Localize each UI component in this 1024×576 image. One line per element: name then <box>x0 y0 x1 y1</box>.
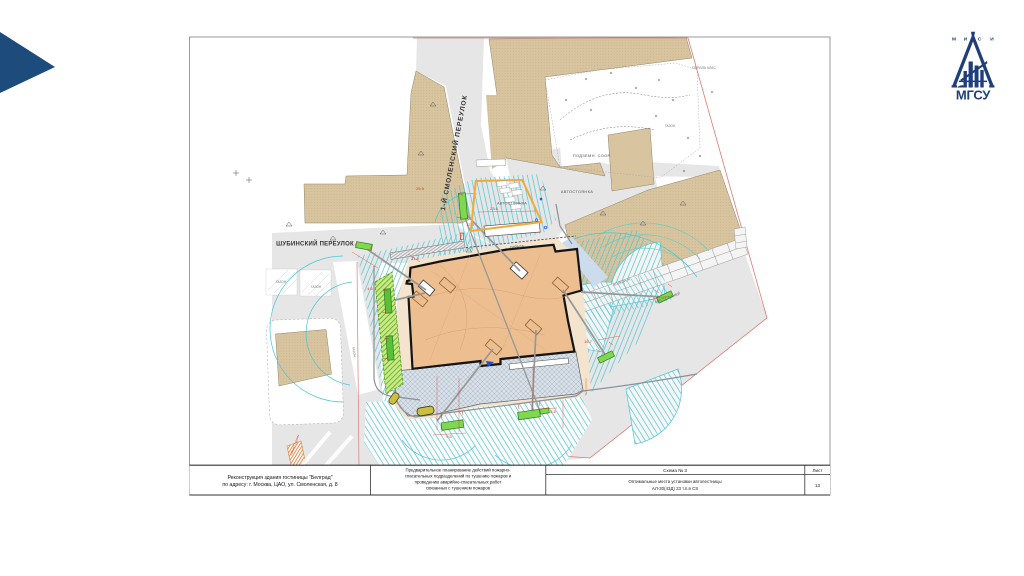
svg-text:АЛ-30(43Д) 23 т.п.в CS: АЛ-30(43Д) 23 т.п.в CS <box>652 486 698 491</box>
svg-text:ШУБИНСКИЙ ПЕРЕУЛОК: ШУБИНСКИЙ ПЕРЕУЛОК <box>276 240 354 248</box>
svg-text:АВТОСТОЯНКА: АВТОСТОЯНКА <box>497 202 527 206</box>
svg-text:ПЕРИЛА КЛАС: ПЕРИЛА КЛАС <box>692 66 716 70</box>
svg-text:И: И <box>964 37 968 43</box>
svg-text:АВТОСТОЯНКА: АВТОСТОЯНКА <box>561 189 593 194</box>
svg-text:23.6: 23.6 <box>490 206 499 211</box>
svg-text:И: И <box>990 37 994 43</box>
svg-text:ГАЗОН: ГАЗОН <box>276 280 287 284</box>
svg-text:М: М <box>952 37 956 43</box>
svg-text:связанных с тушением пожаров: связанных с тушением пожаров <box>426 486 491 491</box>
svg-text:9.5: 9.5 <box>446 434 452 439</box>
svg-text:ГАЗОН: ГАЗОН <box>311 285 322 289</box>
svg-text:Предварительное планирование д: Предварительное планирование действий по… <box>406 468 511 473</box>
svg-text:С: С <box>978 37 982 43</box>
svg-text:по адресу: г. Москва, ЦАО, ул.: по адресу: г. Москва, ЦАО, ул. Смоленска… <box>222 482 337 488</box>
svg-text:4.5: 4.5 <box>367 286 373 291</box>
svg-text:ГАЗОН: ГАЗОН <box>665 124 676 128</box>
svg-text:16.7: 16.7 <box>584 339 593 344</box>
svg-text:Схема № 3: Схема № 3 <box>663 468 687 473</box>
svg-text:13: 13 <box>815 483 821 488</box>
svg-text:17.5: 17.5 <box>466 222 475 227</box>
svg-text:спасательных подразделений по: спасательных подразделений по тушению по… <box>405 474 512 479</box>
svg-text:проведению аварийно-спасательн: проведению аварийно-спасательных работ <box>415 480 502 485</box>
svg-text:ПОДЗЕМН. СООР.: ПОДЗЕМН. СООР. <box>573 153 611 158</box>
svg-text:Реконструкция здания гостиницы: Реконструкция здания гостиницы "Белград" <box>227 475 332 481</box>
svg-text:Лист: Лист <box>813 468 824 473</box>
svg-text:8.5: 8.5 <box>550 409 556 414</box>
svg-text:21.0: 21.0 <box>411 256 420 261</box>
svg-text:МГСУ: МГСУ <box>956 88 991 103</box>
svg-text:Оптимальные места установки ав: Оптимальные места установки автолестницы <box>628 479 721 484</box>
svg-text:25.5: 25.5 <box>416 186 425 191</box>
